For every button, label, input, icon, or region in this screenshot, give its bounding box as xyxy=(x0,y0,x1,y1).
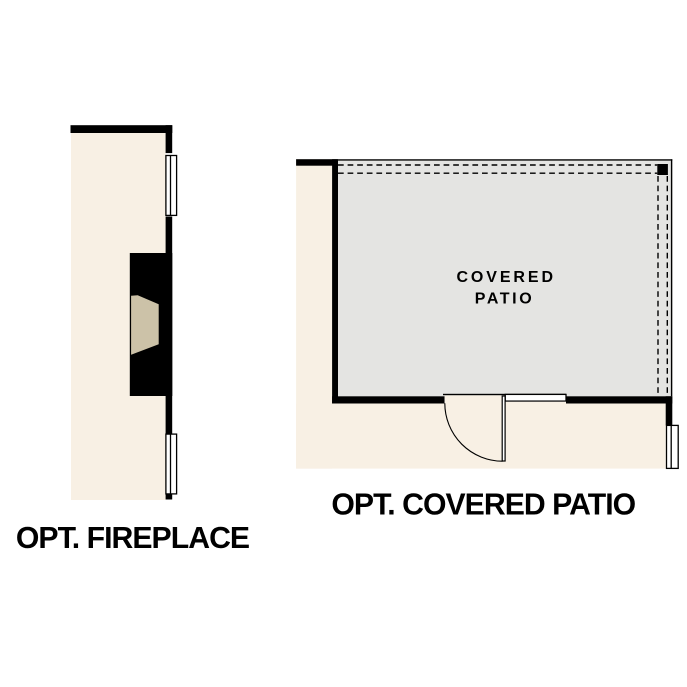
svg-text:COVERED: COVERED xyxy=(456,269,555,286)
svg-text:PATIO: PATIO xyxy=(475,290,535,307)
svg-text:OPT. COVERED PATIO: OPT. COVERED PATIO xyxy=(331,489,635,522)
svg-text:OPT. FIREPLACE: OPT. FIREPLACE xyxy=(16,522,249,555)
